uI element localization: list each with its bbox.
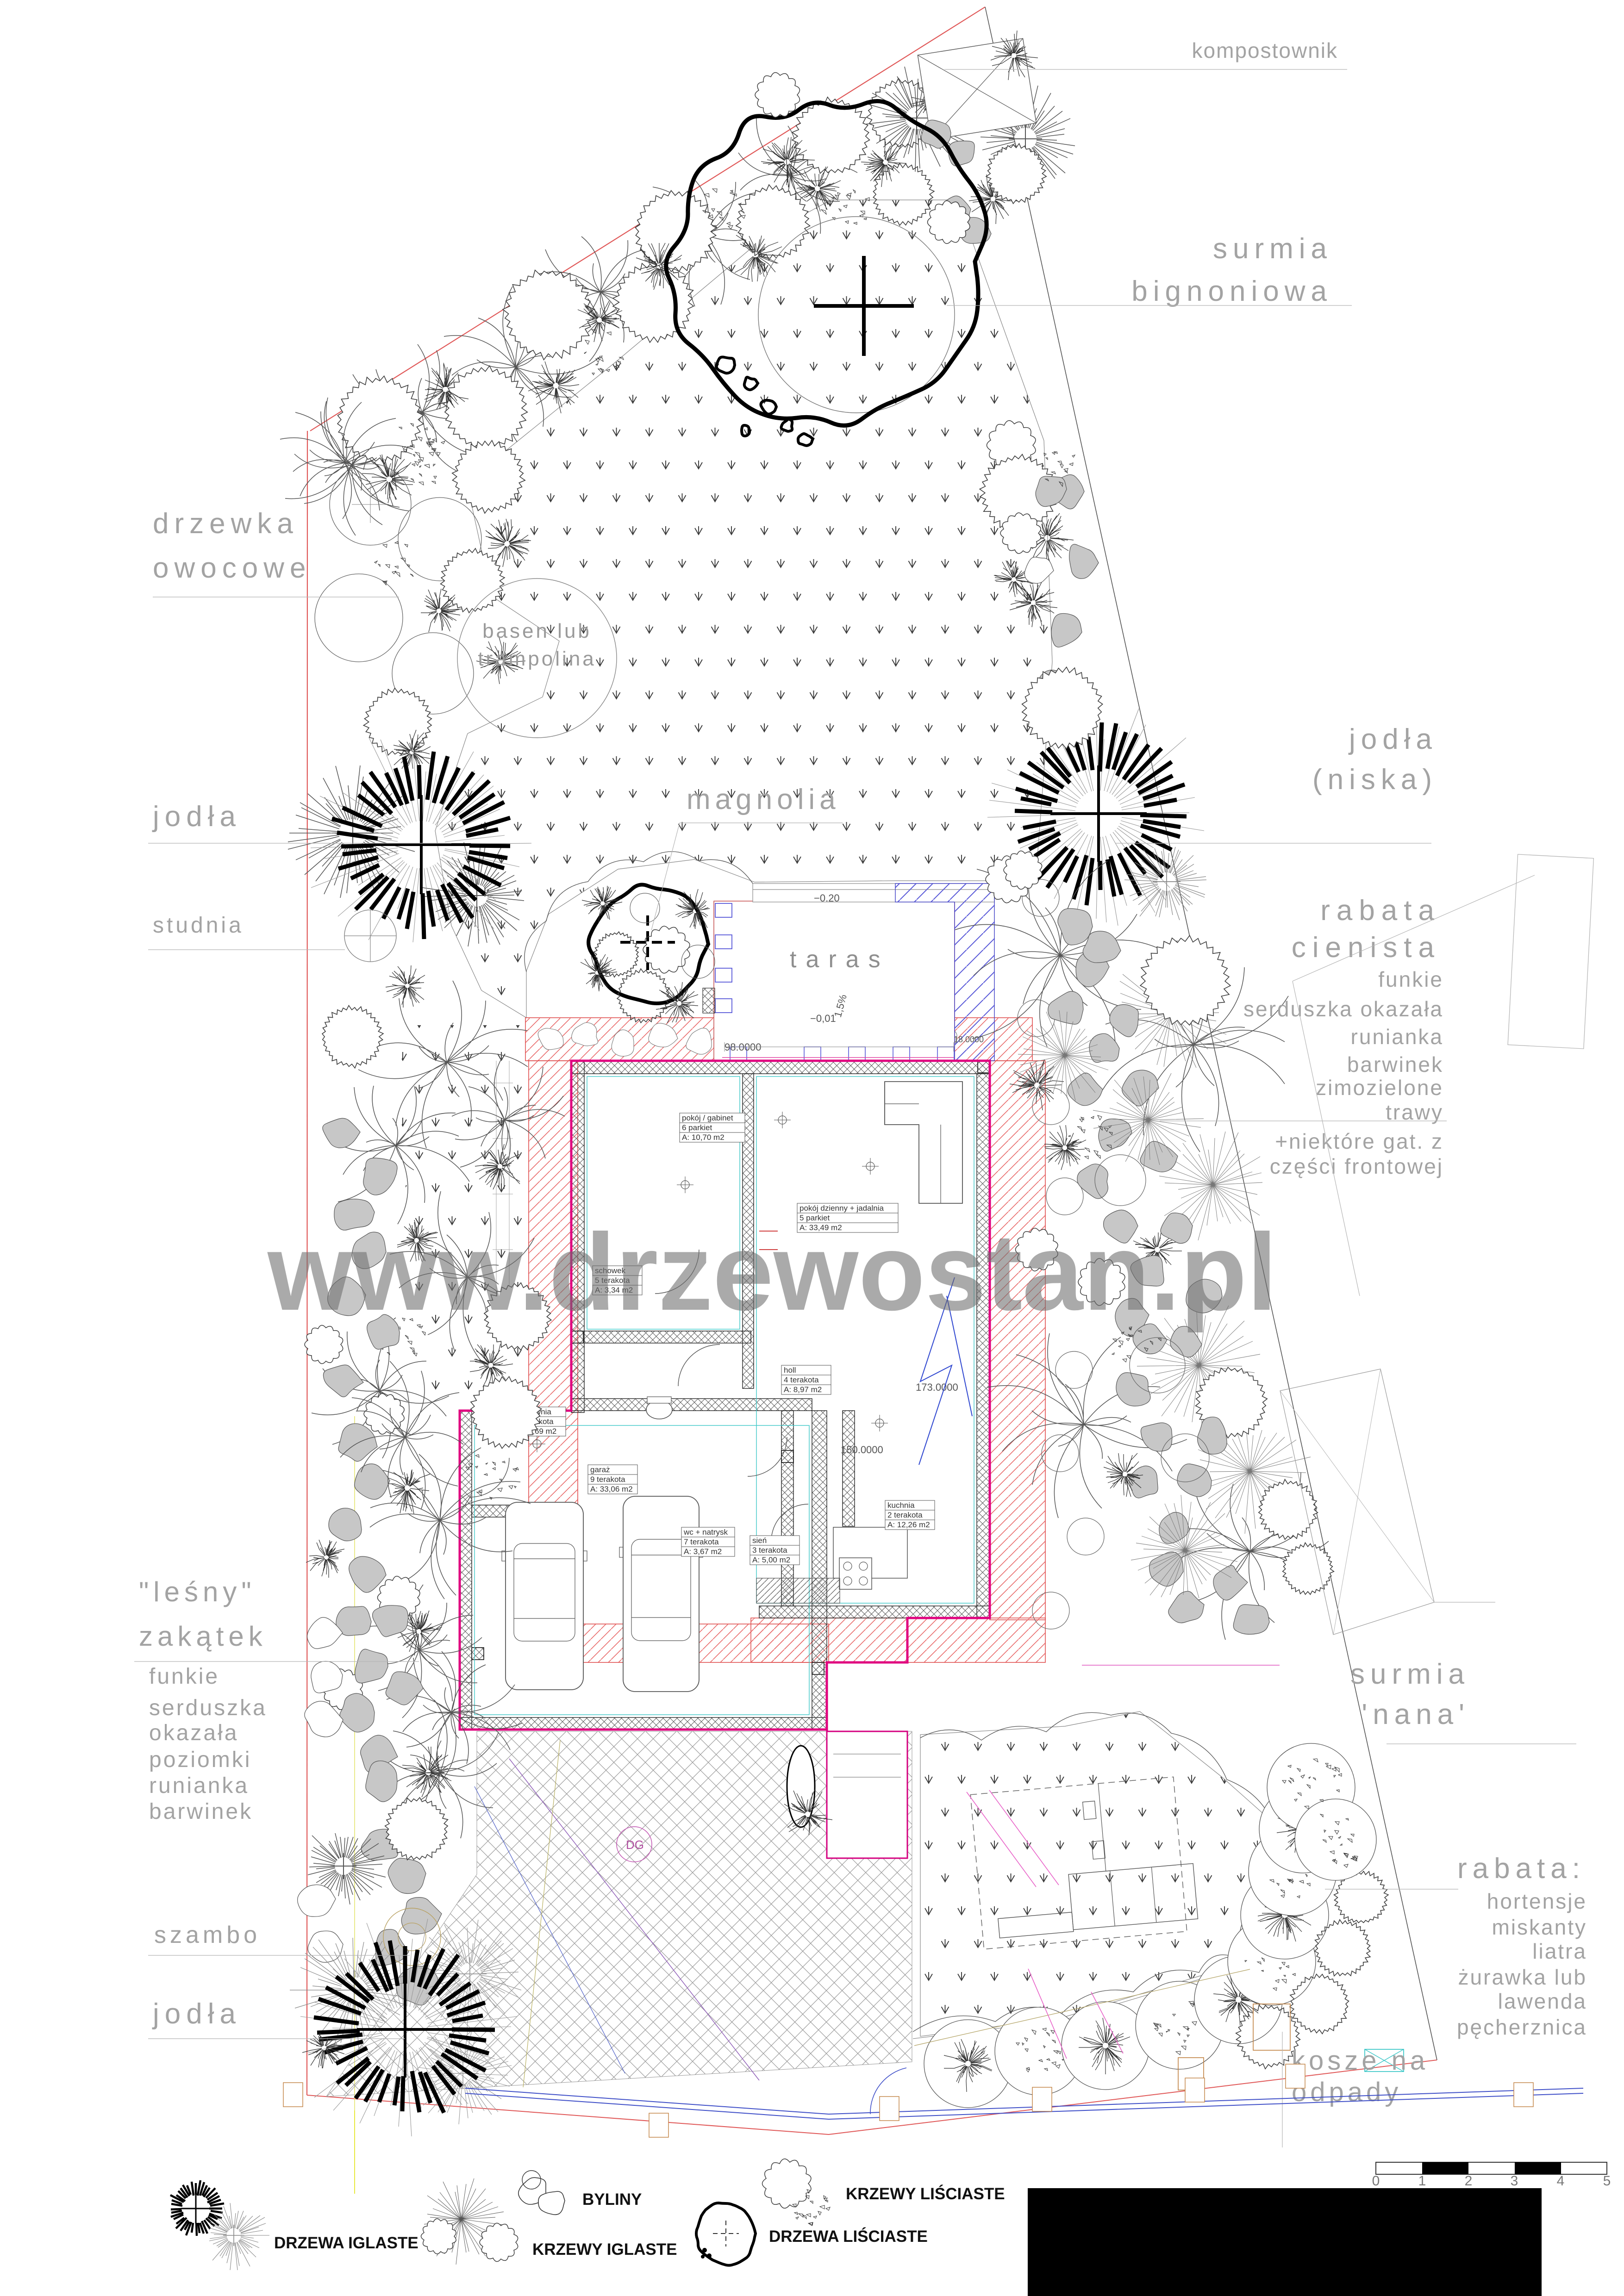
svg-text:5: 5 (1603, 2173, 1611, 2189)
svg-text:BYLINY: BYLINY (582, 2190, 642, 2209)
svg-text:runianka: runianka (1351, 1025, 1443, 1049)
svg-text:hortensje: hortensje (1487, 1889, 1587, 1913)
svg-text:owocowe: owocowe (153, 552, 311, 584)
svg-text:żurawka lub: żurawka lub (1458, 1965, 1587, 1989)
svg-text:trampolina: trampolina (478, 647, 596, 670)
svg-text:3 terakota: 3 terakota (752, 1546, 787, 1555)
svg-text:A: 10,70 m2: A: 10,70 m2 (682, 1133, 725, 1142)
svg-text:4 terakota: 4 terakota (784, 1375, 819, 1384)
svg-text:(niska): (niska) (1312, 764, 1437, 796)
svg-text:garaż: garaż (590, 1465, 610, 1474)
svg-text:magnolia: magnolia (687, 784, 840, 815)
svg-text:6 parkiet: 6 parkiet (682, 1123, 712, 1132)
svg-text:A: 5,00 m2: A: 5,00 m2 (752, 1556, 790, 1564)
svg-text:A: 33,06 m2: A: 33,06 m2 (590, 1485, 633, 1493)
svg-text:części frontowej: części frontowej (1270, 1154, 1443, 1178)
svg-text:bignoniowa: bignoniowa (1131, 275, 1332, 307)
svg-text:150.0000: 150.0000 (841, 1444, 883, 1456)
svg-text:A: 12,26 m2: A: 12,26 m2 (887, 1520, 930, 1529)
svg-text:liatra: liatra (1532, 1939, 1587, 1963)
svg-text:cienista: cienista (1292, 932, 1441, 964)
svg-text:holl: holl (784, 1366, 796, 1375)
svg-text:runianka: runianka (149, 1773, 249, 1798)
svg-text:KRZEWY LIŚCIASTE: KRZEWY LIŚCIASTE (846, 2184, 1005, 2203)
svg-text:DRZEWA IGLASTE: DRZEWA IGLASTE (274, 2234, 418, 2252)
svg-text:−0.20: −0.20 (814, 892, 840, 904)
svg-text:taras: taras (790, 946, 890, 973)
svg-text:0: 0 (1372, 2173, 1380, 2189)
svg-text:www.drzewostan.pl: www.drzewostan.pl (267, 1211, 1277, 1333)
svg-text:basen lub: basen lub (482, 620, 592, 642)
svg-text:poziomki: poziomki (149, 1748, 251, 1772)
svg-text:2 terakota: 2 terakota (887, 1511, 923, 1519)
svg-text:trawy: trawy (1386, 1100, 1443, 1124)
svg-text:A: 8,97 m2: A: 8,97 m2 (784, 1385, 822, 1394)
svg-text:pęcherznica: pęcherznica (1457, 2015, 1587, 2039)
svg-text:kosze na: kosze na (1292, 2046, 1429, 2076)
svg-text:A: 3,67 m2: A: 3,67 m2 (684, 1547, 722, 1556)
svg-text:DG: DG (626, 1838, 644, 1852)
svg-text:kuchnia: kuchnia (887, 1501, 915, 1510)
svg-text:drzewka: drzewka (153, 508, 299, 540)
svg-text:1: 1 (1418, 2173, 1426, 2189)
svg-text:DRZEWA LIŚCIASTE: DRZEWA LIŚCIASTE (769, 2227, 928, 2246)
svg-text:serduszka: serduszka (149, 1696, 267, 1720)
svg-text:4: 4 (1557, 2173, 1565, 2189)
svg-text:rabata: rabata (1320, 895, 1441, 927)
svg-text:wc + natrysk: wc + natrysk (683, 1528, 728, 1537)
svg-text:kompostownik: kompostownik (1192, 38, 1338, 62)
svg-text:studnia: studnia (153, 913, 244, 938)
svg-text:okazała: okazała (149, 1721, 238, 1745)
svg-text:lawenda: lawenda (1498, 1989, 1587, 2013)
svg-text:2: 2 (1465, 2173, 1473, 2189)
svg-text:zakątek: zakątek (139, 1621, 267, 1652)
svg-text:sień: sień (752, 1536, 767, 1545)
svg-text:szambo: szambo (154, 1922, 261, 1948)
svg-text:rabata:: rabata: (1457, 1853, 1586, 1885)
svg-text:9 terakota: 9 terakota (590, 1475, 625, 1484)
svg-text:pokój / gabinet: pokój / gabinet (682, 1114, 733, 1122)
svg-text:barwinek: barwinek (1347, 1052, 1443, 1076)
svg-text:jodła: jodła (152, 801, 241, 833)
svg-text:18.0000: 18.0000 (954, 1035, 984, 1044)
svg-text:zimozielone: zimozielone (1316, 1076, 1443, 1100)
svg-text:funkie: funkie (149, 1664, 219, 1689)
svg-text:jodła: jodła (1348, 723, 1437, 755)
svg-text:173.0000: 173.0000 (916, 1381, 958, 1393)
svg-text:funkie: funkie (1378, 967, 1443, 991)
svg-text:surmia: surmia (1213, 233, 1332, 265)
svg-text:7 terakota: 7 terakota (684, 1537, 719, 1546)
svg-text:barwinek: barwinek (149, 1799, 253, 1824)
svg-text:miskanty: miskanty (1492, 1915, 1587, 1939)
svg-text:surmia: surmia (1350, 1658, 1470, 1690)
svg-text:3: 3 (1511, 2173, 1518, 2189)
svg-text:"leśny": "leśny" (139, 1576, 256, 1607)
svg-text:+niektóre gat. z: +niektóre gat. z (1275, 1129, 1443, 1153)
svg-text:'nana': 'nana' (1362, 1699, 1470, 1730)
svg-text:KRZEWY IGLASTE: KRZEWY IGLASTE (532, 2240, 677, 2259)
svg-text:jodła: jodła (152, 1998, 241, 2030)
svg-text:serduszka okazała: serduszka okazała (1243, 997, 1443, 1021)
